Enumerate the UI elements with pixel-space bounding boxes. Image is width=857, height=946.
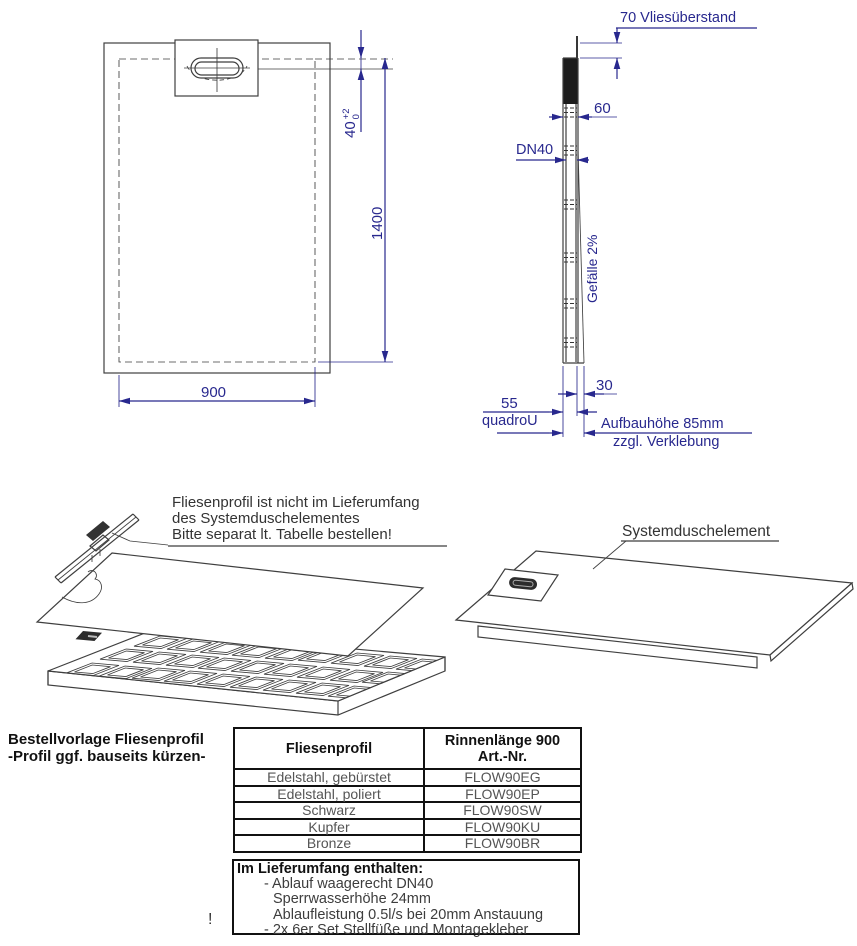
- plan-view: [104, 30, 393, 407]
- included-item: Ablaufleistung 0.5l/s bei 20mm Anstauung: [234, 908, 578, 923]
- included-item: Sperrwasserhöhe 24mm: [234, 892, 578, 907]
- profile-cell: Edelstahl, poliert: [234, 786, 424, 803]
- profile-note-line1: Fliesenprofil ist nicht im Lieferumfang: [172, 494, 420, 511]
- fleece-overhang-label: 70 Vliesüberstand: [620, 10, 736, 26]
- dim-55-label: 55: [501, 395, 518, 412]
- tolerance-zero: 0: [352, 108, 362, 119]
- element-label: Systemduschelement: [622, 523, 770, 541]
- profile-cell: Kupfer: [234, 819, 424, 836]
- table-row: Edelstahl, poliert FLOW90EP: [234, 786, 581, 803]
- header-artnr: Rinnenlänge 900 Art.-Nr.: [424, 728, 581, 769]
- artnr-cell: FLOW90BR: [424, 835, 581, 852]
- dim-drain-offset-value: 40: [342, 121, 359, 138]
- order-note-line2: -Profil ggf. bauseits kürzen-: [8, 748, 206, 765]
- order-note-line1: Bestellvorlage Fliesenprofil: [8, 731, 204, 748]
- side-section-view: [483, 28, 757, 437]
- included-box: Im Lieferumfang enthalten: - Ablauf waag…: [232, 859, 580, 935]
- build-height-label: Aufbauhöhe 85mm: [601, 416, 724, 432]
- exploded-view-left: [37, 514, 449, 715]
- exclamation-mark: !: [208, 911, 212, 929]
- artnr-cell: FLOW90EG: [424, 769, 581, 786]
- included-title: Im Lieferumfang enthalten:: [234, 862, 578, 877]
- dim-length-label: 1400: [369, 207, 386, 240]
- header-artnr-line1: Rinnenlänge 900: [425, 733, 580, 749]
- slope-label: Gefälle 2%: [584, 235, 600, 303]
- drawing-sheet: 40 +2 0 1400 900 70 Vliesüberstand 60 DN…: [0, 0, 857, 946]
- included-item: - 2x 6er Set Stellfüße und Montagekleber: [234, 923, 578, 938]
- glue-note-label: zzgl. Verklebung: [613, 434, 719, 450]
- table-row: Bronze FLOW90BR: [234, 835, 581, 852]
- product-name-label: quadroU: [482, 413, 538, 429]
- dim-30-label: 30: [596, 377, 613, 394]
- profile-note-line2: des Systemduschelementes: [172, 510, 360, 527]
- header-artnr-line2: Art.-Nr.: [425, 749, 580, 765]
- profile-cell: Edelstahl, gebürstet: [234, 769, 424, 786]
- table-row: Kupfer FLOW90KU: [234, 819, 581, 836]
- drain-pipe-label: DN40: [516, 142, 553, 158]
- included-item: - Ablauf waagerecht DN40: [234, 877, 578, 892]
- table-header-row: Fliesenprofil Rinnenlänge 900 Art.-Nr.: [234, 728, 581, 769]
- profile-cell: Schwarz: [234, 802, 424, 819]
- order-table: Fliesenprofil Rinnenlänge 900 Art.-Nr. E…: [233, 727, 582, 853]
- dim-drain-offset: 40 +2 0: [342, 108, 361, 138]
- artnr-cell: FLOW90SW: [424, 802, 581, 819]
- profile-cell: Bronze: [234, 835, 424, 852]
- profile-note-line3: Bitte separat lt. Tabelle bestellen!: [172, 526, 392, 543]
- dim-width-label: 900: [201, 384, 226, 401]
- table-row: Schwarz FLOW90SW: [234, 802, 581, 819]
- table-row: Edelstahl, gebürstet FLOW90EG: [234, 769, 581, 786]
- header-fliesenprofil: Fliesenprofil: [234, 728, 424, 769]
- artnr-cell: FLOW90KU: [424, 819, 581, 836]
- artnr-cell: FLOW90EP: [424, 786, 581, 803]
- dim-60-label: 60: [594, 100, 611, 117]
- dim-tolerance: +2 0: [342, 108, 361, 119]
- exploded-view-right: [456, 541, 853, 668]
